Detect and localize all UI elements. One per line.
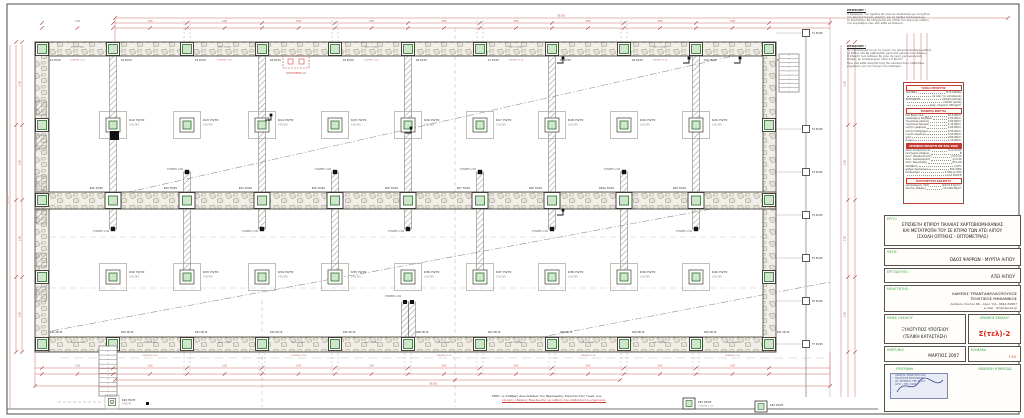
column — [183, 273, 191, 281]
subject-text-line: (ΤΕΛΙΚΗ ΚΑΤΑΣΤΑΣΗ) — [887, 334, 963, 341]
svg-text:ΣΤΑΘΜΗ -2.60: ΣΤΑΘΜΗ -2.60 — [532, 230, 548, 233]
detail-callout — [283, 56, 309, 68]
column — [331, 273, 339, 281]
svg-text:4Φ12 ΣΕΝΑΖ: 4Φ12 ΣΕΝΑΖ — [509, 341, 523, 344]
svg-text:Τ1 25/25: Τ1 25/25 — [812, 32, 823, 35]
svg-text:K22 70/25: K22 70/25 — [90, 186, 104, 190]
external-column — [803, 255, 810, 262]
svg-text:4Φ12 ΣΕΝΑΖ: 4Φ12 ΣΕΝΑΖ — [653, 341, 667, 344]
svg-text:K42 25/70: K42 25/70 — [121, 331, 134, 334]
spec-row: άνεμος1.10 kN/m² — [906, 139, 962, 142]
svg-text:K36 70/70: K36 70/70 — [424, 270, 439, 274]
svg-text:4Φ12 ΣΕΝΑΖ: 4Φ12 ΣΕΝΑΖ — [71, 46, 85, 49]
svg-text:11.15: 11.15 — [6, 196, 10, 204]
svg-text:4Φ12 ΣΕΝΑΖ: 4Φ12 ΣΕΝΑΖ — [365, 341, 379, 344]
svg-text:ΣΤΑΘΜΗ -0.05: ΣΤΑΘΜΗ -0.05 — [770, 408, 786, 411]
svg-text:140/140: 140/140 — [351, 124, 361, 127]
location-cell: ΘΕΣΗ: ΟΔΟΣ ΨΑΡΡΩΝ - ΜΥΡΤΙΑ ΑΙΓΙΟΥ — [884, 248, 1021, 266]
external-column — [803, 298, 810, 305]
external-column — [803, 212, 810, 219]
client-value: ΑΤΕΙ ΑΙΓΙΟΥ — [991, 274, 1015, 279]
beam-end-marker — [478, 170, 482, 174]
svg-text:140/140: 140/140 — [496, 276, 506, 279]
svg-text:K33 70/70: K33 70/70 — [203, 270, 218, 274]
diagonal-brace-line — [40, 200, 760, 333]
spec-section-header: ΥΛΙΚΑ ΜΕΛΕΤΗΣ — [906, 85, 962, 91]
beam-end-marker — [260, 227, 264, 231]
svg-text:K19 70/70: K19 70/70 — [640, 118, 655, 122]
svg-text:K10 25/70: K10 25/70 — [704, 59, 717, 62]
svg-text:36.50: 36.50 — [557, 14, 565, 18]
scale-cell: ΚΛΙΜΑΚΑ 1:50 — [968, 346, 1021, 362]
svg-text:140/140: 140/140 — [640, 124, 650, 127]
svg-text:3.65: 3.65 — [657, 20, 663, 23]
svg-text:K30 70/25: K30 70/25 — [673, 186, 687, 190]
svg-text:K8 25/70: K8 25/70 — [560, 59, 571, 62]
svg-text:K49 25/70: K49 25/70 — [632, 331, 645, 334]
column — [258, 196, 267, 205]
beam — [110, 209, 117, 229]
beam — [332, 209, 339, 277]
corner-marker — [110, 131, 119, 140]
svg-text:ΣΤΑΘΜΗ -2.60: ΣΤΑΘΜΗ -2.60 — [167, 168, 183, 171]
subject-text: ΞΥΛΟΤΥΠΟΣ ΥΠΟΓΕΙΟΥ(ΤΕΛΙΚΗ ΚΑΤΑΣΤΑΣΗ) — [887, 327, 963, 340]
svg-text:ΣΤΑΘΜΗ -0.05: ΣΤΑΘΜΗ -0.05 — [698, 405, 714, 408]
spec-section-header: ΠΑΡΑΜΕΤΡΟΙ ΕΔΑΦΟΥΣ — [906, 178, 962, 184]
svg-text:Τ7 25/25: Τ7 25/25 — [812, 343, 823, 346]
svg-text:K23 70/25: K23 70/25 — [164, 186, 178, 190]
svg-text:4Φ12 ΣΕΝΑΖ: 4Φ12 ΣΕΝΑΖ — [581, 341, 595, 344]
svg-text:3.65: 3.65 — [513, 365, 519, 368]
scale-label: ΚΛΙΜΑΚΑ — [971, 348, 986, 352]
svg-text:ΛΕΠΤΟΜΕΡΕΙΑ Δ1: ΛΕΠΤΟΜΕΡΕΙΑ Δ1 — [286, 72, 307, 75]
svg-text:140/140: 140/140 — [278, 276, 288, 279]
column — [548, 196, 557, 205]
spec-section-header: ΣΕΙΣΜΙΚΗ ΜΕΛΕΤΗ ΜΕ ΕΑΚ 2000 — [906, 143, 962, 149]
beam — [693, 209, 700, 229]
svg-text:140/140: 140/140 — [203, 124, 213, 127]
svg-text:K27 70/25: K27 70/25 — [457, 186, 471, 190]
svg-text:K44 25/70: K44 25/70 — [270, 331, 283, 334]
svg-text:3.80: 3.80 — [844, 80, 847, 86]
external-column — [803, 126, 810, 133]
column — [404, 196, 413, 205]
svg-text:K20 70/70: K20 70/70 — [712, 118, 727, 122]
svg-text:3.65: 3.65 — [147, 365, 153, 368]
project-text-line: (ΣΧΟΛΗ ΟΠΤΙΚΗΣ - ΟΠΤΟΜΕΤΡΙΑΣ) — [887, 234, 1018, 240]
svg-text:140/140: 140/140 — [351, 276, 361, 279]
beam-end-marker — [185, 170, 189, 174]
beam-end-marker — [550, 227, 554, 231]
project-text-line: ΚΑΙ ΜΕΤΑΤΡΟΠΗ ΤΟΥ ΣΕ ΚΤΙΡΙΟ ΤΩΝ ΑΤΕΙ ΑΙΓ… — [887, 228, 1018, 234]
column — [331, 196, 340, 205]
svg-text:3.80: 3.80 — [19, 80, 22, 86]
beam-end-marker — [622, 170, 626, 174]
subject-cell: ΘΕΜΑ ΣΧΕΔΙΟΥ ΞΥΛΟΤΥΠΟΣ ΥΠΟΓΕΙΟΥ(ΤΕΛΙΚΗ Κ… — [884, 314, 966, 344]
column — [692, 45, 701, 54]
column — [620, 196, 629, 205]
location-value: ΟΔΟΣ ΨΑΡΡΩΝ - ΜΥΡΤΙΑ ΑΙΓΙΟΥ — [950, 257, 1015, 262]
svg-text:K37 70/70: K37 70/70 — [496, 270, 511, 274]
svg-text:K1 25/70: K1 25/70 — [50, 59, 61, 62]
column — [183, 121, 191, 129]
svg-text:ΣΤΑΘΜΗ -2.60: ΣΤΑΘΜΗ -2.60 — [604, 168, 620, 171]
column — [109, 121, 117, 129]
beam — [402, 302, 409, 337]
column — [183, 340, 192, 349]
column — [331, 121, 339, 129]
column — [476, 121, 484, 129]
approval-label: ΘΕΩΡΗΣΗ ΥΠΗΡΕΣΙΑΣ — [978, 367, 1012, 371]
svg-text:K29α 70/25: K29α 70/25 — [599, 186, 614, 190]
column — [476, 45, 485, 54]
svg-text:4Φ12 ΣΕΝΑΖ: 4Φ12 ΣΕΝΑΖ — [143, 341, 157, 344]
svg-text:140/140: 140/140 — [424, 124, 434, 127]
svg-text:K16 70/70: K16 70/70 — [424, 118, 439, 122]
svg-text:K46 25/70: K46 25/70 — [416, 331, 429, 334]
svg-text:ΣΤΑΘΜΗ -0.05: ΣΤΑΘΜΗ -0.05 — [725, 354, 741, 357]
svg-text:K4 25/70: K4 25/70 — [270, 59, 281, 62]
svg-text:K45 25/70: K45 25/70 — [343, 331, 356, 334]
engineer-text-line: e-mail : ltri@otenet.gr — [887, 306, 1017, 310]
note-lines-line: του εργολάβου πριν από κάθε κατασκευή. — [847, 22, 963, 25]
beam-end-marker — [333, 170, 337, 174]
beam — [549, 209, 556, 229]
svg-text:ΣΤΑΘΜΗ -0.05: ΣΤΑΘΜΗ -0.05 — [291, 354, 307, 357]
column — [258, 45, 267, 54]
column — [692, 121, 700, 129]
svg-text:K47 25/70: K47 25/70 — [488, 331, 501, 334]
svg-text:K51 25/70: K51 25/70 — [777, 331, 790, 334]
svg-text:ΣΤΑΘΜΗ -2.60: ΣΤΑΘΜΗ -2.60 — [315, 168, 331, 171]
column — [109, 196, 118, 205]
svg-text:3.80: 3.80 — [844, 311, 847, 317]
svg-text:K38 70/70: K38 70/70 — [568, 270, 583, 274]
svg-text:Κ53 25/25: Κ53 25/25 — [770, 403, 784, 407]
svg-text:3.65: 3.65 — [730, 365, 736, 368]
column — [692, 196, 701, 205]
svg-text:3.65: 3.65 — [296, 365, 302, 368]
svg-text:ΣΤΑΘΜΗ -2.60: ΣΤΑΘΜΗ -2.60 — [242, 230, 258, 233]
svg-text:3.65: 3.65 — [75, 365, 81, 368]
column — [765, 273, 774, 282]
svg-text:3.80: 3.80 — [19, 311, 22, 317]
column — [258, 340, 267, 349]
external-column — [803, 30, 810, 37]
svg-text:K14 70/70: K14 70/70 — [278, 118, 293, 122]
svg-text:K17 70/70: K17 70/70 — [496, 118, 511, 122]
drawing-number-cell: ΑΡΙΘΜΟΣ ΣΧΕΔΙΟΥ Σ(τελ)-2 — [968, 314, 1021, 344]
signature-scribble — [891, 374, 947, 398]
svg-text:K39 70/70: K39 70/70 — [640, 270, 655, 274]
beam — [621, 172, 628, 192]
beam-end-marker — [694, 227, 698, 231]
column — [38, 340, 47, 349]
svg-text:K9 25/70: K9 25/70 — [632, 59, 643, 62]
svg-text:4Φ12 ΣΕΝΑΖ: 4Φ12 ΣΕΝΑΖ — [653, 46, 667, 49]
svg-text:140/140: 140/140 — [496, 124, 506, 127]
column — [620, 340, 629, 349]
drawing-number-label: ΑΡΙΘΜΟΣ ΣΧΕΔΙΟΥ — [969, 316, 1020, 320]
svg-text:3.80: 3.80 — [844, 159, 847, 165]
svg-text:K18 70/70: K18 70/70 — [568, 118, 583, 122]
column — [620, 121, 628, 129]
column — [765, 340, 774, 349]
note-lines-line: μηχανικός για τον έλεγχο του οπλισμού. — [847, 65, 963, 68]
svg-text:140/140: 140/140 — [203, 276, 213, 279]
svg-text:3.65: 3.65 — [222, 365, 228, 368]
svg-text:140/140: 140/140 — [424, 276, 434, 279]
svg-text:K6 25/70: K6 25/70 — [416, 59, 427, 62]
svg-text:ΣΤΑΘΜΗ -2.60: ΣΤΑΘΜΗ -2.60 — [460, 168, 476, 171]
beam — [405, 209, 412, 229]
beam — [621, 209, 628, 277]
column — [765, 121, 774, 130]
beam — [332, 172, 339, 192]
svg-text:Τ6 25/25: Τ6 25/25 — [812, 300, 823, 303]
svg-text:ΣΤΑΘΜΗ -0.05: ΣΤΑΘΜΗ -0.05 — [217, 59, 233, 62]
svg-text:K32 70/70: K32 70/70 — [129, 270, 144, 274]
column — [476, 340, 485, 349]
svg-text:3.65: 3.65 — [441, 20, 447, 23]
svg-text:Τ2 25/25: Τ2 25/25 — [812, 128, 823, 131]
svg-text:3.65: 3.65 — [730, 20, 736, 23]
bottom-note-red: έλεγχος εδάφους θεμελίωσης με ευθύνη του… — [502, 398, 702, 402]
external-column — [803, 341, 810, 348]
svg-text:3.65: 3.65 — [441, 365, 447, 368]
svg-text:K34 70/70: K34 70/70 — [278, 270, 293, 274]
svg-text:36.50: 36.50 — [429, 382, 437, 386]
svg-text:3.65: 3.65 — [222, 20, 228, 23]
project-text: ΕΠΙΣΚΕΥΗ ΚΤΙΡΙΟΥ ΠΑΛΑΙΑΣ ΧΑΡΤΟΒΙΟΜΗΧΑΝΙΑ… — [887, 222, 1018, 240]
svg-text:K3 25/70: K3 25/70 — [195, 59, 206, 62]
svg-text:4Φ12 ΣΕΝΑΖ: 4Φ12 ΣΕΝΑΖ — [218, 341, 232, 344]
svg-text:K5 25/70: K5 25/70 — [343, 59, 354, 62]
svg-text:3.65: 3.65 — [75, 20, 81, 23]
svg-text:140/140: 140/140 — [568, 276, 578, 279]
diagonal-brace-line — [40, 50, 760, 212]
note-block-1: ΠΡΟΣΟΧΗ : Η εφαρμογή του σχεδίου θα γίνε… — [847, 8, 963, 26]
svg-text:3.80: 3.80 — [19, 159, 22, 165]
svg-text:Τ3 25/25: Τ3 25/25 — [812, 171, 823, 174]
engineer-cell: ΜΕΛΕΤΗΤΗΣ: ΛΑΜΠΗΣ ΤΡΙΑΝΤΑΦΥΛΛΟΠΟΥΛΟΣΠΟΛΙ… — [884, 285, 1021, 312]
date-value: ΜΑΡΤΙΟΣ 2007 — [928, 353, 959, 358]
date-label: ΗΜΕΡ/ΝΙΑ — [887, 348, 904, 352]
subject-label: ΘΕΜΑ ΣΧΕΔΙΟΥ — [887, 316, 913, 320]
column — [765, 45, 774, 54]
column — [258, 121, 266, 129]
svg-text:3.80: 3.80 — [844, 235, 847, 241]
svg-text:ΣΤΑΘΜΗ -0.05: ΣΤΑΘΜΗ -0.05 — [580, 354, 596, 357]
svg-text:Τ5 25/25: Τ5 25/25 — [812, 257, 823, 260]
svg-text:Κ29 70/70: Κ29 70/70 — [122, 398, 136, 402]
project-label: ΕΡΓΟ: — [887, 217, 897, 221]
svg-text:Τ4 25/25: Τ4 25/25 — [812, 214, 823, 217]
svg-text:K28 70/25: K28 70/25 — [529, 186, 543, 190]
note-block-2: ΠΡΟΣΟΧΗ : Τα υποστυλώματα και τα τοιχία … — [847, 44, 963, 68]
column — [38, 273, 47, 282]
svg-text:140/140: 140/140 — [712, 276, 722, 279]
engineer-text: ΛΑΜΠΗΣ ΤΡΙΑΝΤΑΦΥΛΛΟΠΟΥΛΟΣΠΟΛΙΤΙΚΟΣ ΜΗΧΑΝ… — [887, 291, 1017, 310]
svg-text:ΣΤΑΘΜΗ -2.60: ΣΤΑΘΜΗ -2.60 — [93, 230, 109, 233]
svg-text:K41 25/70: K41 25/70 — [50, 331, 63, 334]
column — [38, 196, 47, 205]
svg-text:K40 70/70: K40 70/70 — [712, 270, 727, 274]
svg-text:3.65: 3.65 — [369, 20, 375, 23]
svg-text:3.65: 3.65 — [147, 20, 153, 23]
column — [692, 340, 701, 349]
beam — [259, 209, 266, 229]
svg-text:3.65: 3.65 — [585, 20, 591, 23]
svg-text:3.65: 3.65 — [657, 365, 663, 368]
beam — [409, 302, 416, 337]
svg-text:140/140: 140/140 — [122, 403, 132, 406]
bottom-note: ΣΗΜ.: οι στάθμες άνω πεδίλων της θεμελίω… — [492, 394, 702, 402]
column — [38, 121, 47, 130]
svg-text:ΣΤΑΘΜΗ -2.60: ΣΤΑΘΜΗ -2.60 — [676, 230, 692, 233]
column — [548, 121, 556, 129]
diagonal-brace-line — [500, 282, 830, 345]
engineer-stamp: ΛΑΜΠΗΣ ΤΡΙΑΝΤ/ΠΟΥΛΟΣΠΟΛΙΤΙΚΟΣ ΜΗΧΑΝΙΚΟΣΑ… — [890, 373, 948, 399]
svg-text:ΣΤΑΘΜΗ -0.05: ΣΤΑΘΜΗ -0.05 — [142, 354, 158, 357]
svg-text:ΣΤΑΘΜΗ -2.60: ΣΤΑΘΜΗ -2.60 — [385, 295, 401, 298]
location-label: ΘΕΣΗ: — [887, 250, 898, 254]
svg-text:K15 70/70: K15 70/70 — [351, 118, 366, 122]
note-lines: Η εφαρμογή του σχεδίου θα γίνει σε συνδυ… — [847, 13, 963, 26]
column — [548, 273, 556, 281]
svg-text:ΣΤΑΘΜΗ -0.05: ΣΤΑΘΜΗ -0.05 — [652, 59, 668, 62]
external-column — [803, 169, 810, 176]
svg-text:4Φ12 ΣΕΝΑΖ: 4Φ12 ΣΕΝΑΖ — [726, 341, 740, 344]
column — [548, 45, 557, 54]
svg-text:3.65: 3.65 — [513, 20, 519, 23]
svg-text:K25 70/25: K25 70/25 — [312, 186, 326, 190]
svg-text:K13 70/70: K13 70/70 — [203, 118, 218, 122]
svg-text:K35 70/70: K35 70/70 — [351, 270, 366, 274]
client-label: ΕΡΓΟΔΟΤΗΣ: — [887, 270, 909, 274]
svg-text:ΣΤΑΘΜΗ -0.05: ΣΤΑΘΜΗ -0.05 — [508, 59, 524, 62]
column — [404, 45, 413, 54]
svg-text:K24 70/25: K24 70/25 — [239, 186, 253, 190]
column — [404, 340, 413, 349]
client-cell: ΕΡΓΟΔΟΤΗΣ: ΑΤΕΙ ΑΙΓΙΟΥ — [884, 268, 1021, 283]
note-lines: Τα υποστυλώματα και τα τοιχία του υπογεί… — [847, 49, 963, 69]
column — [620, 45, 629, 54]
drawing-number-value: Σ(τελ)-2 — [969, 330, 1020, 338]
svg-text:3.80: 3.80 — [19, 235, 22, 241]
svg-text:4Φ12 ΣΕΝΑΖ: 4Φ12 ΣΕΝΑΖ — [437, 341, 451, 344]
svg-text:140/140: 140/140 — [278, 124, 288, 127]
column — [183, 196, 192, 205]
svg-text:4Φ12 ΣΕΝΑΖ: 4Φ12 ΣΕΝΑΖ — [509, 46, 523, 49]
column — [38, 45, 47, 54]
svg-text:4Φ12 ΣΕΝΑΖ: 4Φ12 ΣΕΝΑΖ — [365, 46, 379, 49]
svg-text:K12 70/70: K12 70/70 — [129, 118, 144, 122]
column — [258, 273, 266, 281]
svg-text:K50 25/70: K50 25/70 — [704, 331, 717, 334]
column — [476, 273, 484, 281]
svg-text:4Φ12 ΣΕΝΑΖ: 4Φ12 ΣΕΝΑΖ — [71, 341, 85, 344]
spec-row: ελάχ. τσιμέντο 330 kg/m³ — [906, 104, 962, 107]
svg-text:ΣΤΑΘΜΗ -0.05: ΣΤΑΘΜΗ -0.05 — [436, 354, 452, 357]
beam-end-marker — [111, 227, 115, 231]
column — [109, 45, 118, 54]
spec-row: G+0.30Q±E — [906, 174, 962, 177]
column — [765, 196, 774, 205]
svg-text:K48 25/70: K48 25/70 — [560, 331, 573, 334]
svg-text:K7 25/70: K7 25/70 — [488, 59, 499, 62]
beam — [477, 209, 484, 277]
spec-section-header: ΜΟΝΙΜΑ ΦΟΡΤΙΑ — [906, 108, 962, 114]
column — [183, 45, 192, 54]
beam — [477, 172, 484, 192]
svg-text:K26 70/25: K26 70/25 — [385, 186, 399, 190]
column — [548, 340, 557, 349]
svg-text:140/140: 140/140 — [640, 276, 650, 279]
column — [331, 45, 340, 54]
svg-text:140/140: 140/140 — [129, 124, 139, 127]
design-spec-table: ΥΛΙΚΑ ΜΕΛΕΤΗΣΧΑΛΥΒΑΣSt III (S400s)σε όλε… — [903, 82, 964, 204]
beam-end-marker — [406, 227, 410, 231]
drawing-sheet: ΣΤΑΘΜΗ -2.60ΣΤΑΘΜΗ -2.60ΣΤΑΘΜΗ -2.60ΣΤΑΘ… — [0, 0, 1024, 418]
svg-text:ΣΤΑΘΜΗ -0.05: ΣΤΑΘΜΗ -0.05 — [70, 59, 86, 62]
svg-text:4Φ12 ΣΕΝΑΖ: 4Φ12 ΣΕΝΑΖ — [218, 46, 232, 49]
scale-value: 1:50 — [1008, 355, 1016, 359]
column — [692, 273, 700, 281]
beam — [184, 172, 191, 192]
project-cell: ΕΡΓΟ: ΕΠΙΣΚΕΥΗ ΚΤΙΡΙΟΥ ΠΑΛΑΙΑΣ ΧΑΡΤΟΒΙΟΜ… — [884, 215, 1021, 246]
svg-text:3.65: 3.65 — [585, 365, 591, 368]
svg-text:K43 25/70: K43 25/70 — [195, 331, 208, 334]
column — [109, 273, 117, 281]
svg-text:140/140: 140/140 — [712, 124, 722, 127]
date-cell: ΗΜΕΡ/ΝΙΑ ΜΑΡΤΙΟΣ 2007 — [884, 346, 966, 362]
svg-text:140/140: 140/140 — [568, 124, 578, 127]
signature-cell: ΥΠΟΓΡΑΦΗ ΘΕΩΡΗΣΗ ΥΠΗΡΕΣΙΑΣ ΛΑΜΠΗΣ ΤΡΙΑΝΤ… — [884, 364, 1021, 412]
svg-text:140/140: 140/140 — [129, 276, 139, 279]
column — [476, 196, 485, 205]
svg-text:ΣΤΑΘΜΗ -0.05: ΣΤΑΘΜΗ -0.05 — [364, 59, 380, 62]
svg-text:ΣΤΑΘΜΗ -2.60: ΣΤΑΘΜΗ -2.60 — [388, 230, 404, 233]
spec-row: δείκτης εδάφουςKs=300 Mp/m³ — [906, 187, 962, 190]
beam — [184, 209, 191, 277]
svg-text:3.65: 3.65 — [296, 20, 302, 23]
svg-text:3.65: 3.65 — [369, 365, 375, 368]
column — [404, 273, 412, 281]
signature-label: ΥΠΟΓΡΑΦΗ — [896, 367, 913, 371]
svg-text:4Φ12 ΣΕΝΑΖ: 4Φ12 ΣΕΝΑΖ — [292, 341, 306, 344]
svg-text:K2 25/70: K2 25/70 — [121, 59, 132, 62]
column — [331, 340, 340, 349]
column — [620, 273, 628, 281]
